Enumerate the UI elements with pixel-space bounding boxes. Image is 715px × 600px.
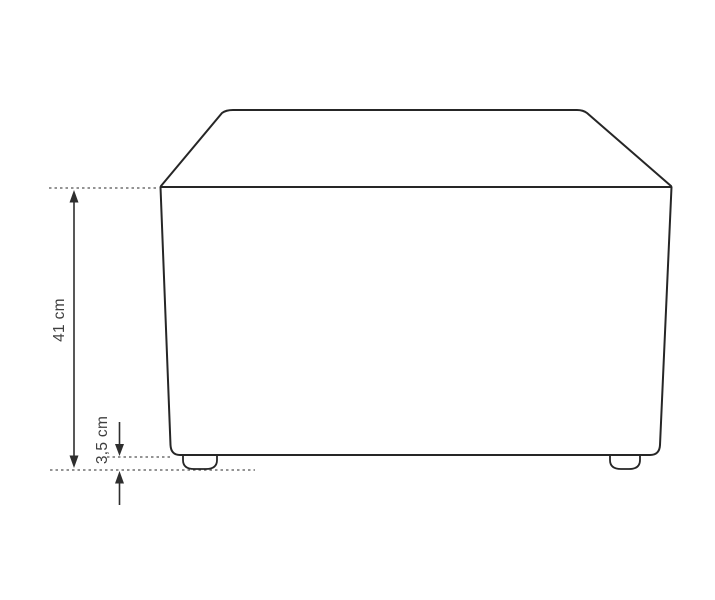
total-height-label: 41 cm <box>51 298 68 342</box>
furniture-right-foot <box>610 455 640 469</box>
height-arrow-up-icon <box>70 190 79 203</box>
diagram-canvas: 41 cm 3,5 cm <box>0 0 715 600</box>
height-arrow-down-icon <box>70 456 79 469</box>
furniture-left-foot <box>183 455 217 469</box>
furniture-top-surface <box>161 110 671 186</box>
furniture-dimension-diagram: 41 cm 3,5 cm <box>0 0 715 600</box>
leg-height-label: 3,5 cm <box>94 416 111 464</box>
leg-height-arrow-up-icon <box>115 471 124 484</box>
leg-height-arrow-down-icon <box>115 444 124 456</box>
furniture-front-face <box>161 187 672 455</box>
